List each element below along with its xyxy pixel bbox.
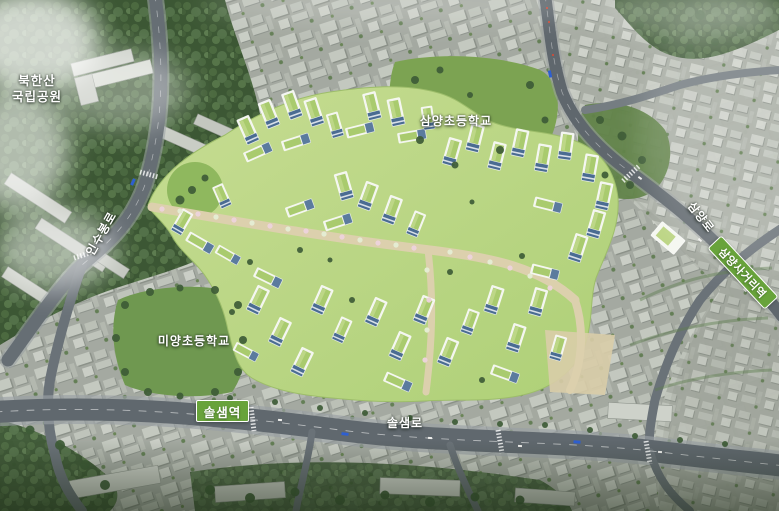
label-samyang-elementary: 삼양초등학교 xyxy=(420,114,492,130)
aerial-rendering-view: 북한산 국립공원 삼양초등학교 미양초등학교 인수봉로 삼양로 솔샘로 솔샘역 … xyxy=(0,0,779,511)
label-bukhansan-park: 북한산 국립공원 xyxy=(12,73,62,106)
label-miyang-elementary: 미양초등학교 xyxy=(158,334,230,350)
bottom-vignette xyxy=(0,440,779,511)
label-solsaem-ro: 솔샘로 xyxy=(387,416,423,432)
solsaem-station-badge: 솔샘역 xyxy=(196,400,249,422)
scene-svg xyxy=(0,0,779,511)
